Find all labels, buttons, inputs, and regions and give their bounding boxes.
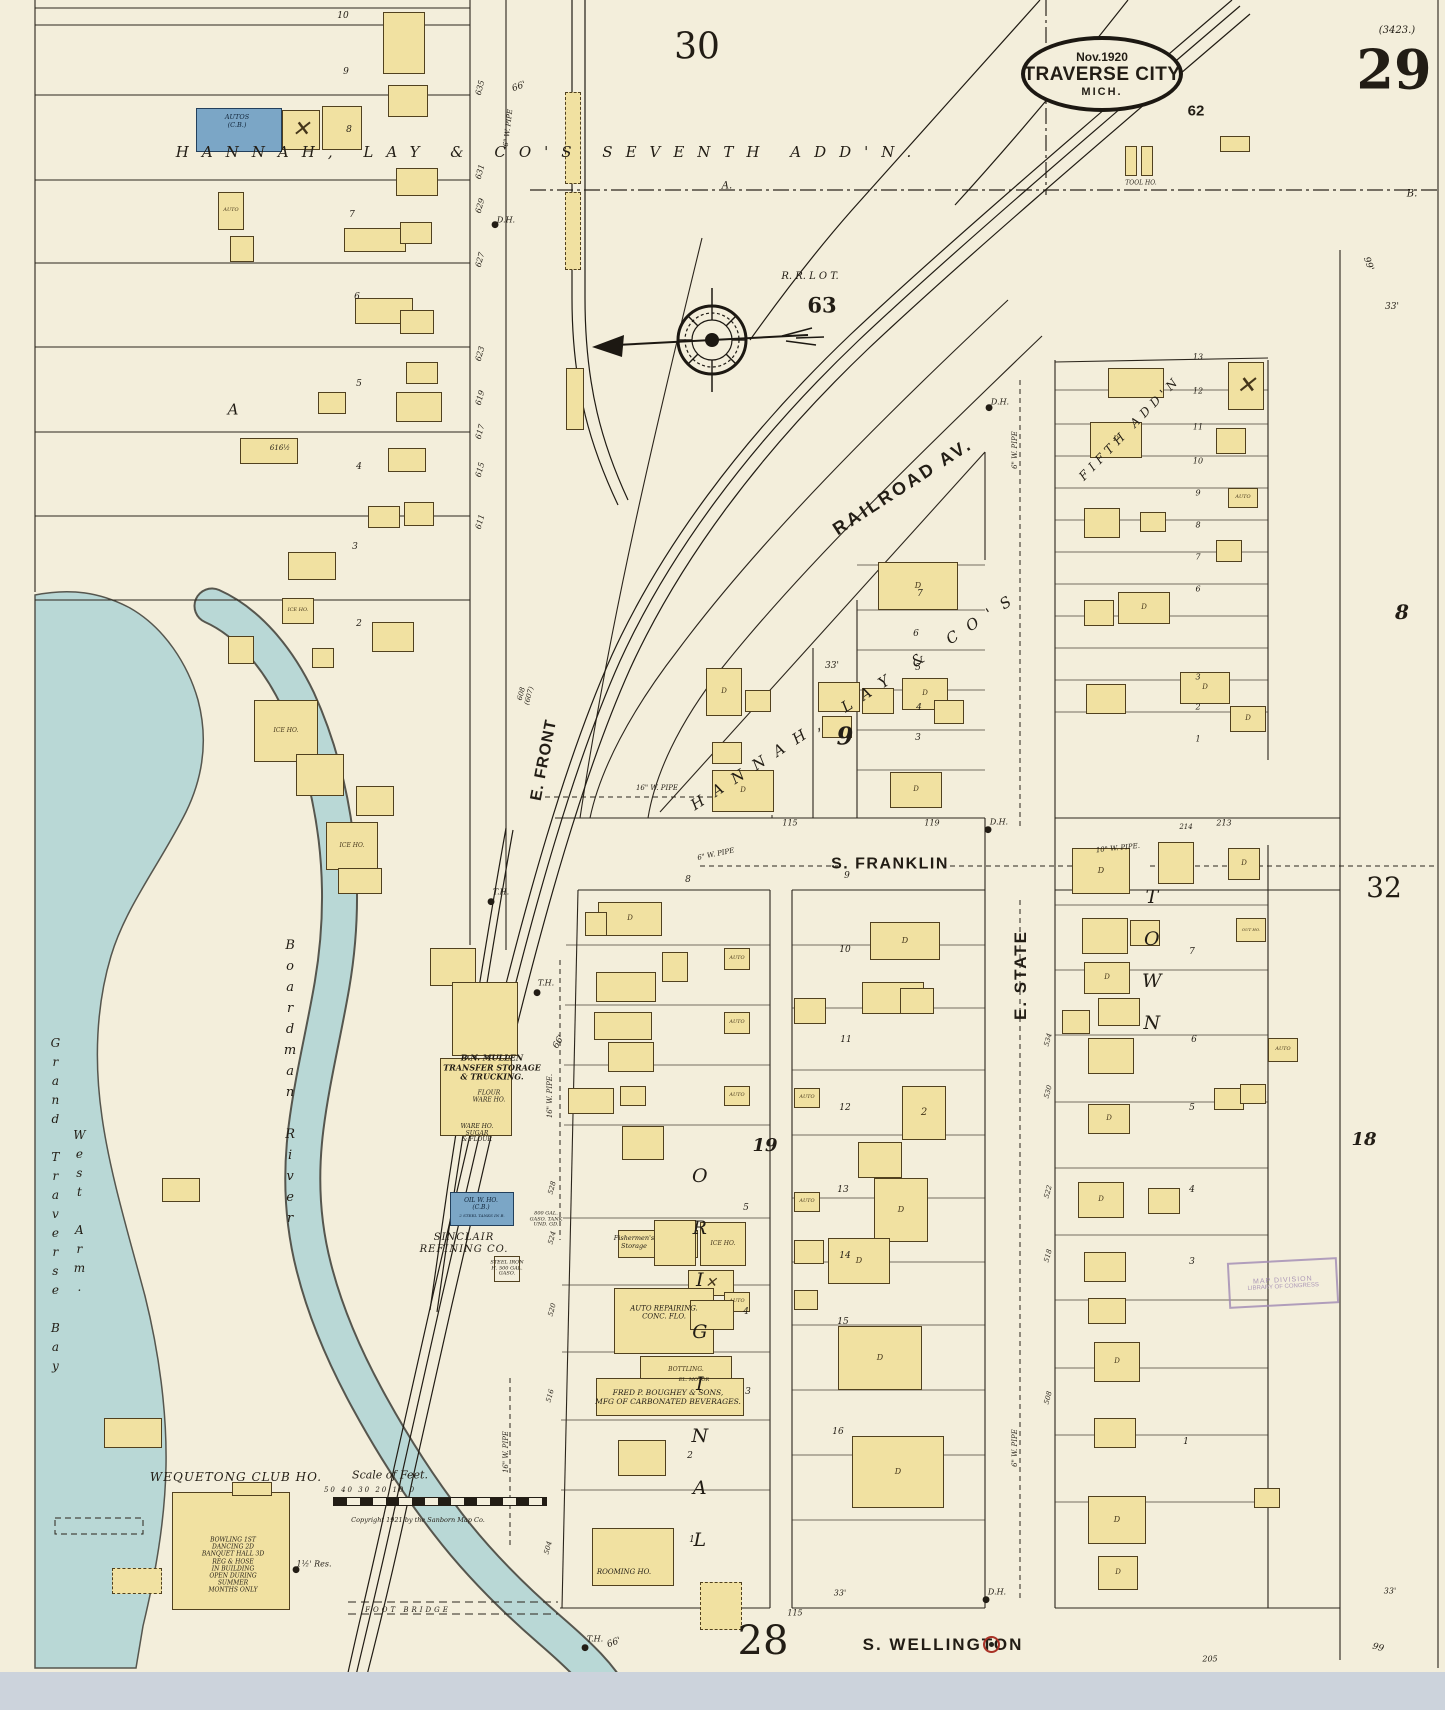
map-annotation: 12 [1193,388,1203,397]
map-annotation: 5 [1189,1103,1195,1113]
map-annotation: 619 [475,389,488,406]
street-e-state: E. STATE [1011,930,1031,1020]
title-oval: Nov.1920 TRAVERSE CITY MICH. [1021,36,1183,112]
map-annotation: 7 [1189,947,1195,957]
map-annotation: EL. MOTOR [679,1378,710,1384]
map-annotation: 5 [356,379,362,389]
map-annotation: 16" W. PIPE [503,1431,511,1473]
map-annotation: 3 [352,542,358,552]
map-annotation: WARE HO. SUGAR & FLOUR [461,1124,494,1144]
rooming-house-label: ROOMING HO. [597,1568,651,1576]
adjacent-sheet-bottom: 28 [738,1617,789,1665]
mullen-transfer-label: B.N. MULLEN TRANSFER STORAGE & TRUCKING. [443,1054,541,1083]
map-annotation: T.H. [587,1636,603,1645]
map-annotation: 11 [1193,424,1203,433]
map-annotation: FOOT BRIDGE [365,1607,451,1615]
map-annotation: ● [581,1643,589,1653]
oil-warehouse-label: OIL W. HO. (C.B.) [464,1197,498,1211]
title-date: Nov.1920 [1076,50,1128,64]
plat-town: TOWN [1140,886,1163,1054]
map-annotation: 1½' Res. [297,1561,332,1570]
map-annotation: 4 [1189,1185,1195,1195]
map-annotation: 2 [687,1451,693,1461]
plate-code: (3423.) [1379,25,1415,37]
map-annotation: D.H. [991,399,1009,408]
map-annotation: 2 STEEL TANKS IN B. [459,1214,504,1218]
map-annotation: 14 [839,1251,850,1261]
map-annotation: 4 [356,462,362,472]
autos-garage-label: AUTOS (C.B.) [225,114,249,130]
map-annotation: 33' [1384,1588,1396,1597]
map-annotation: 4 [743,1307,749,1317]
map-annotation: 10" W. PIPE. [1096,843,1141,855]
plat-seventh-addn: HANNAH, LAY & CO'S SEVENTH ADD'N. [176,143,924,161]
map-annotation: 5 [915,663,921,673]
map-annotation: 8 [346,125,352,135]
map-annotation: 617 [475,423,488,440]
street-e-front: E. FRONT [527,718,562,803]
map-annotation: 13 [1193,354,1203,363]
map-annotation: 6 [1191,1035,1197,1045]
map-annotation: 9 [837,724,854,751]
map-annotation: 66' [511,80,528,94]
map-annotation: 1 [689,1535,695,1545]
plat-hannah-lay-cos: HANNAH, LAY & CO'S [687,586,1025,814]
map-annotation: 18 [1351,1130,1376,1150]
map-annotation: 10 [1193,458,1203,467]
boughey-label: FRED P. BOUGHEY & SONS, MFG OF CARBONATE… [595,1388,741,1406]
plat-original: ORIGINAL [688,1165,711,1581]
map-annotation: 608 (607) [516,684,536,706]
map-annotation: FLOUR WARE HO. [473,1090,506,1103]
map-annotation: 6" W. PIPE [1012,1429,1020,1467]
map-annotation: 2 [1195,704,1200,713]
map-annotation: TOOL HO. [1125,181,1156,188]
copyright-note: Copyright 1921 by the Sanborn Map Co. [351,1517,485,1525]
map-annotation: 7 [917,589,923,599]
map-annotation: 12 [839,1103,850,1113]
map-annotation: D.H. [988,1589,1006,1598]
scale-title: Scale of Feet. [352,1468,428,1481]
street-railroad-av: RAILROAD AV. [829,434,977,541]
map-annotation: 635 [475,79,488,96]
map-annotation: 9 [343,67,349,77]
title-city: TRAVERSE CITY [1023,64,1180,86]
map-annotation: 623 [475,345,488,362]
map-annotation: 522 [1043,1185,1054,1200]
map-annotation: 6" W. PIPE [1012,431,1020,469]
library-stamp: MAP DIVISION LIBRARY OF CONGRESS [1227,1257,1339,1309]
map-annotation: 2 [356,619,362,629]
wequetong-club-details: BOWLING 1ST DANCING 2D BANQUET HALL 3D R… [202,1536,264,1594]
scan-edge [0,1672,1445,1710]
map-annotation: 62 [1188,104,1205,121]
map-annotation: A [228,402,239,419]
map-annotation: 5 [743,1203,749,1213]
map-annotation: ● [982,1595,990,1605]
map-annotation: 9 [1195,490,1200,499]
map-annotation: 19 [752,1136,777,1156]
map-annotation: A. [722,180,732,191]
map-annotation: 115 [787,1610,802,1619]
rr-lot-block-number: 63 [807,292,836,317]
map-annotation: 611 [475,513,488,530]
map-annotation: 7 [1195,554,1200,563]
map-annotation: 8 [1395,601,1409,623]
map-annotation: 534 [1043,1033,1054,1048]
map-annotation: 8 [685,875,691,885]
map-annotation: 205 [1202,1656,1217,1665]
water-label-bay: Grand Traverse Bay [48,1036,62,1378]
map-annotation: 3 [1195,674,1200,683]
map-annotation: 213 [1216,820,1231,829]
map-annotation: 520 [547,1303,558,1318]
map-annotation: 66' [551,1033,567,1050]
map-annotation: 6 [913,629,919,639]
map-annotation: 4 [916,703,922,713]
adjacent-sheet-right: 32 [1366,871,1402,905]
map-annotation: 16" W. PIPE [636,785,678,793]
map-annotation: 504 [543,1541,554,1556]
map-annotation: 518 [1043,1249,1054,1264]
map-annotation: 16" W. PIPE. [547,1074,555,1118]
map-annotation: 115 [782,820,797,829]
map-annotation: D.H. [497,217,515,226]
map-annotation: ● [984,825,992,835]
wequetong-club-label: WEQUETONG CLUB HO. [150,1470,322,1484]
map-annotation: 3 [915,733,921,743]
sinclair-refining-label: SINCLAIR REFINING CO. [420,1232,509,1256]
title-state: MICH. [1081,86,1122,98]
map-annotation: B. [1407,188,1418,199]
map-annotation: 99' [1361,256,1375,273]
map-annotation: 616½ [270,445,290,453]
map-annotation: ● [491,220,499,230]
map-annotation: 11 [840,1035,851,1045]
map-annotation: STEEL IRON H. 500 GAL. GASO. [490,1261,523,1278]
map-annotation: ● [985,403,993,413]
map-annotation: 214 [1179,824,1192,832]
scale-bar [333,1497,547,1506]
map-annotation: 508 [1043,1391,1054,1406]
map-annotation: 800 GAL. GASO. TANK UND. GD. [530,1212,563,1229]
fishermens-storage-label: Fishermen's Storage [614,1235,654,1251]
map-annotation: 9 [844,871,850,881]
map-annotation: 7 [349,210,355,220]
adjacent-sheet-top: 30 [674,25,720,68]
map-annotation: ● [533,988,541,998]
map-annotation: 13 [837,1185,848,1195]
map-annotation: ● [487,897,495,907]
map-annotation: 16 [832,1427,843,1437]
rr-lot-label: R. R. L O T. [781,271,838,283]
map-annotation: 66' [606,1636,623,1650]
map-annotation: 528 [547,1181,558,1196]
map-annotation: ● [292,1565,300,1575]
map-annotation: 33' [1385,302,1399,312]
plat-fifth-addn: FIFTH ADD'N [1076,373,1184,484]
map-annotation: 631 [475,163,488,180]
map-annotation: 3 [1189,1257,1195,1267]
map-annotation: 10 [337,11,348,21]
map-annotation: 1 [1183,1437,1189,1447]
map-annotation: 6 [354,292,360,302]
map-annotation: 1 [1195,736,1200,745]
map-annotation: D.H. [990,819,1008,828]
sanborn-map-sheet: ✕AUTOICE HO.ICE HO.ICE HO.DDDDD✕DAUTODDD… [0,0,1445,1710]
map-annotation: 516 [545,1389,556,1404]
hydrant-marker-red [983,1636,1000,1653]
map-annotation: 10 [839,945,850,955]
map-annotation: T.H. [493,889,509,898]
map-annotation: 99 [1371,1642,1385,1655]
map-annotation: 119 [924,820,939,829]
map-annotation: 15 [837,1317,848,1327]
map-annotation: 6" W. PIPE [697,847,735,862]
auto-repairing-label: AUTO REPAIRING. CONC. FLO. [630,1305,698,1322]
map-annotation: 530 [1043,1085,1054,1100]
map-annotation: 615 [475,461,488,478]
map-annotation: 524 [547,1231,558,1246]
map-annotation: 6 [1195,586,1200,595]
sheet-number: 29 [1356,38,1431,103]
map-annotation: 33' [825,661,839,671]
map-annotation: 627 [475,251,488,268]
water-label-west-arm: West Arm. [72,1128,86,1299]
scale-ticks: 50 40 30 20 10 0 [324,1486,416,1494]
map-annotation: 629 [475,197,488,214]
map-annotation: 8 [1195,522,1200,531]
map-annotation: 3 [745,1387,751,1397]
water-label-river: Boardman River [282,938,298,1232]
map-annotation: 6" W. PIPE [503,109,515,147]
map-annotation: 33' [834,1590,846,1599]
